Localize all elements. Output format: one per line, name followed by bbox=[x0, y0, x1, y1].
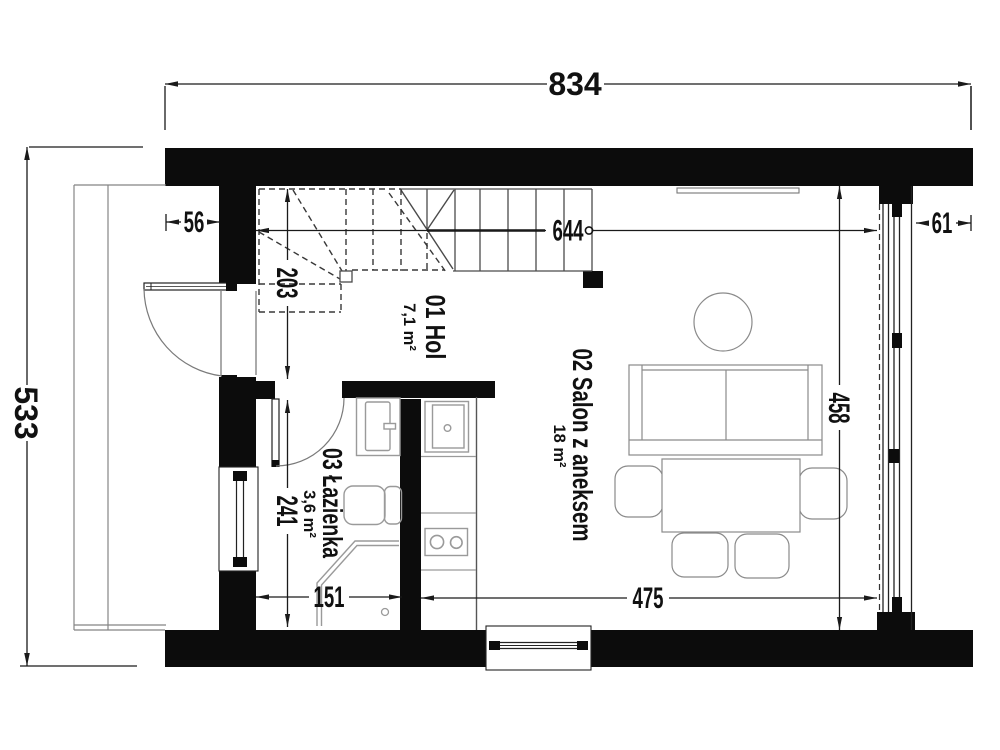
svg-text:834: 834 bbox=[548, 66, 602, 102]
svg-text:533: 533 bbox=[8, 386, 44, 439]
svg-text:475: 475 bbox=[632, 582, 663, 616]
svg-text:7,1 m²: 7,1 m² bbox=[400, 303, 418, 351]
svg-text:02 Salon z aneksem: 02 Salon z aneksem bbox=[566, 348, 597, 541]
svg-text:644: 644 bbox=[552, 214, 583, 248]
svg-text:3,6 m²: 3,6 m² bbox=[300, 490, 318, 538]
svg-text:458: 458 bbox=[822, 392, 856, 423]
svg-text:03 Łazienka: 03 Łazienka bbox=[316, 448, 347, 558]
svg-text:203: 203 bbox=[270, 267, 304, 298]
svg-text:151: 151 bbox=[313, 581, 344, 615]
svg-text:01 Hol: 01 Hol bbox=[419, 295, 450, 360]
svg-text:56: 56 bbox=[184, 206, 205, 240]
svg-text:61: 61 bbox=[932, 207, 953, 241]
svg-text:241: 241 bbox=[270, 495, 304, 526]
svg-text:18 m²: 18 m² bbox=[550, 424, 568, 468]
